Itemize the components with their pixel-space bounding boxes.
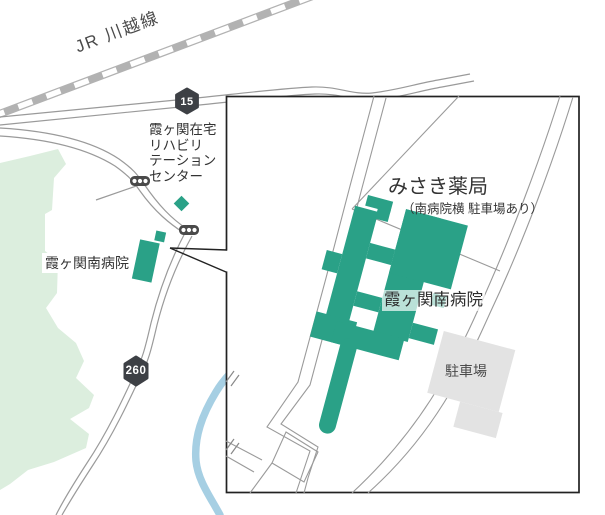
rehab-center-label: 霞ヶ関在宅 リハビリ テーション センター [149,122,217,184]
inset-leader-lines [170,248,228,272]
pharmacy-name-label: みさき薬局 [388,176,488,199]
hospital-label-main: 霞ヶ関南病院 [42,253,132,273]
rehab-center-marker [174,196,190,212]
hospital-label-inset: 霞ヶ関南病院 [382,290,485,311]
traffic-light-icon [179,225,199,235]
access-map: JR 川越線 15 260 霞ヶ関在宅 リハビリ テーション センター 霞ヶ関南… [0,0,605,515]
traffic-light-icon [130,176,150,186]
route-badge-15: 15 [175,96,199,108]
route-badge-260: 260 [122,365,150,377]
pharmacy-note-label: （南病院横 駐車場あり） [402,202,543,216]
hospital-building-main [132,228,166,284]
parking-label: 駐車場 [445,363,487,379]
park-area [0,149,94,490]
